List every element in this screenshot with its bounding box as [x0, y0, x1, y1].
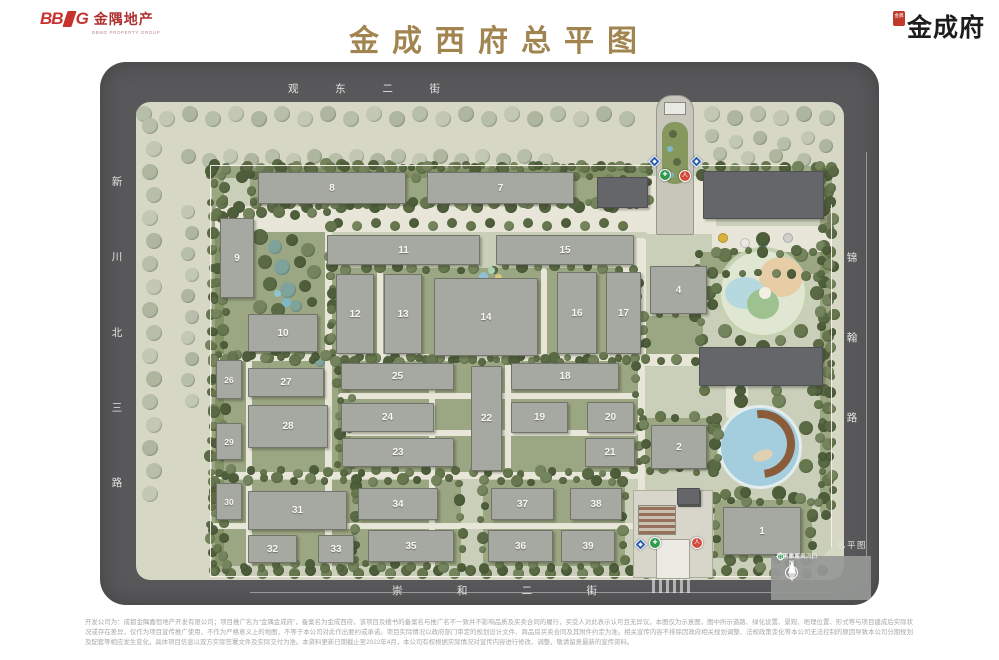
brand-name: 金成府 — [907, 8, 985, 44]
tree — [142, 394, 158, 410]
tree — [213, 544, 222, 553]
tree — [755, 562, 766, 573]
tree — [697, 318, 705, 326]
tree — [631, 361, 641, 371]
tree — [617, 525, 628, 536]
building-18: 18 — [511, 363, 619, 390]
building-25: 25 — [341, 363, 454, 390]
tree — [620, 555, 630, 565]
tree — [829, 486, 837, 494]
tree — [497, 477, 505, 485]
tree — [366, 106, 382, 122]
tree — [705, 129, 719, 143]
tree — [761, 161, 771, 171]
tree — [828, 309, 840, 321]
tree — [795, 493, 806, 504]
tree — [146, 417, 162, 433]
water-dot — [667, 146, 673, 152]
building-number: 4 — [676, 285, 682, 296]
tree — [478, 358, 486, 366]
tree — [185, 394, 199, 408]
tree — [465, 565, 476, 576]
tree — [639, 420, 648, 429]
tree — [323, 208, 331, 216]
tree — [228, 473, 239, 484]
building-31: 31 — [248, 491, 347, 530]
building-number: 35 — [405, 541, 416, 552]
building-dark — [677, 488, 700, 505]
building-number: 16 — [571, 308, 582, 319]
brand-seal-icon: 金隅 — [893, 11, 905, 26]
building-37: 37 — [491, 488, 554, 520]
tree — [142, 486, 158, 502]
building-12: 12 — [336, 274, 374, 354]
tree — [321, 477, 329, 485]
building-number: 34 — [392, 499, 403, 510]
south-entrance-gate — [633, 490, 713, 578]
building-number: 33 — [330, 544, 341, 555]
tree — [185, 226, 199, 240]
tree — [212, 214, 219, 221]
landscape-pond — [718, 405, 802, 489]
tree — [142, 210, 158, 226]
tree — [829, 438, 837, 446]
building-22: 22 — [471, 366, 502, 471]
tree — [807, 509, 818, 520]
tree — [457, 267, 465, 275]
tree — [447, 218, 457, 228]
tree — [504, 221, 514, 231]
tree — [734, 394, 748, 408]
tree — [721, 565, 732, 576]
tree — [455, 480, 462, 487]
tree — [227, 207, 239, 219]
tree — [819, 110, 835, 126]
tree — [567, 163, 575, 171]
tree — [527, 479, 535, 487]
tree — [307, 149, 322, 164]
building-number: 25 — [392, 371, 403, 382]
building-35: 35 — [368, 530, 454, 562]
tree — [725, 555, 736, 566]
north-entrance-gate — [656, 95, 694, 235]
tree — [527, 111, 543, 127]
tree — [542, 221, 552, 231]
tree — [219, 195, 229, 205]
building-number: 26 — [224, 375, 233, 385]
tree — [641, 439, 651, 449]
footpath — [541, 268, 547, 364]
tree — [826, 500, 836, 510]
building-number: 20 — [605, 412, 616, 423]
building-number: 36 — [515, 541, 526, 552]
tree — [730, 248, 738, 256]
building-number: 10 — [277, 328, 288, 339]
lane-line-bottom — [250, 592, 835, 593]
building-number: 24 — [382, 412, 393, 423]
south-gatehouse — [656, 539, 690, 579]
tree — [431, 475, 442, 486]
building-28: 28 — [248, 405, 328, 448]
tree — [256, 207, 267, 218]
tree — [711, 283, 722, 294]
building-34: 34 — [358, 488, 438, 520]
tree — [142, 164, 158, 180]
tree — [142, 440, 158, 456]
site-plan-map: 观东二街 崇和二街 新川北三路 锦翰路 总平图 N 行人出入口地下车库入口消防救… — [100, 62, 879, 605]
tree — [515, 562, 522, 569]
building-number: 21 — [604, 447, 615, 458]
tree — [822, 246, 831, 255]
tree — [294, 256, 306, 268]
tree — [713, 147, 727, 161]
building-number: 31 — [292, 505, 303, 516]
tree — [220, 403, 232, 415]
building-36: 36 — [488, 530, 553, 562]
tree — [397, 473, 409, 485]
tree — [827, 470, 838, 481]
tree — [699, 385, 710, 396]
tree — [617, 476, 628, 487]
tree — [343, 111, 359, 127]
building-number: 39 — [582, 541, 593, 552]
building-number: 9 — [234, 253, 240, 264]
tree — [713, 429, 724, 440]
tree — [268, 240, 282, 254]
building-number: 38 — [590, 499, 601, 510]
building-dark — [703, 171, 824, 219]
tree — [828, 166, 839, 177]
south-gate-canopy — [638, 505, 676, 535]
tree — [801, 131, 815, 145]
building-number: 1 — [759, 526, 765, 537]
tree — [142, 302, 158, 318]
building-number: 18 — [559, 371, 570, 382]
tree — [351, 474, 362, 485]
building-29: 29 — [216, 423, 242, 460]
tree — [309, 356, 317, 364]
tree — [791, 245, 802, 256]
tree — [371, 218, 381, 228]
tree — [274, 106, 290, 122]
building-number: 22 — [481, 413, 492, 424]
tree — [523, 218, 533, 228]
tree — [818, 224, 827, 233]
tree — [756, 232, 770, 246]
tree — [807, 385, 818, 396]
tree — [323, 467, 333, 477]
building-number: 11 — [398, 245, 409, 256]
building-number: 12 — [349, 309, 360, 320]
tree — [827, 360, 835, 368]
tree — [307, 208, 317, 218]
water-dot — [274, 290, 281, 297]
building-32: 32 — [248, 535, 297, 563]
tree — [562, 563, 569, 570]
tree — [704, 106, 720, 122]
tree — [735, 335, 746, 346]
tree — [320, 350, 331, 361]
building-number: 19 — [534, 412, 545, 423]
tree — [796, 106, 812, 122]
tree — [481, 111, 497, 127]
tree — [671, 414, 679, 422]
tree — [260, 353, 270, 363]
tree — [223, 149, 238, 164]
tree — [695, 250, 703, 258]
tree — [727, 110, 743, 126]
building-19: 19 — [511, 402, 568, 433]
tree — [327, 305, 336, 314]
tree — [735, 385, 746, 396]
disclaimer-text: 开发公司为：成都金隅嘉恒地产开发有限公司；项目推广名为“金隅金成府”，备案名为金… — [85, 618, 913, 647]
tree — [805, 527, 816, 538]
tree — [339, 161, 350, 172]
tree — [573, 111, 589, 127]
tree — [720, 489, 731, 500]
tree — [622, 492, 630, 500]
tree — [711, 413, 722, 424]
tree — [219, 182, 230, 193]
tree — [422, 266, 430, 274]
building-8: 8 — [258, 172, 406, 204]
compass-icon — [785, 560, 799, 584]
tree — [458, 106, 474, 122]
tree — [205, 111, 221, 127]
tree — [776, 250, 784, 258]
tree — [695, 335, 706, 346]
tree — [565, 468, 572, 475]
tree — [435, 111, 451, 127]
tree — [340, 476, 347, 483]
building-21: 21 — [585, 438, 635, 467]
tree — [454, 494, 466, 506]
tree — [815, 161, 825, 171]
building-38: 38 — [570, 488, 622, 520]
tree — [181, 289, 195, 303]
tree — [485, 218, 495, 228]
tree — [263, 277, 277, 291]
tree — [504, 106, 520, 122]
tree — [273, 206, 285, 218]
tree — [825, 452, 834, 461]
tree — [640, 455, 650, 465]
tree — [247, 466, 255, 474]
tree — [585, 199, 592, 206]
amenity-icon — [718, 233, 728, 243]
tree — [385, 568, 396, 579]
fire-entrance-marker: ✚ — [649, 537, 661, 549]
building-9: 9 — [220, 218, 254, 298]
brand-logo: 金隅 金成府 — [893, 8, 985, 44]
legend-item-label: 消防救援出入口 — [777, 552, 818, 560]
tree — [258, 564, 265, 571]
tree — [325, 221, 337, 233]
tree — [258, 255, 272, 269]
building-2: 2 — [651, 425, 707, 469]
water-dot — [282, 298, 291, 307]
tree — [301, 243, 315, 257]
tree — [307, 297, 317, 307]
ped-entrance-marker: 人 — [691, 537, 703, 549]
ped-entrance-marker: 人 — [679, 170, 691, 182]
tree — [277, 353, 285, 361]
tree — [185, 268, 199, 282]
tree — [146, 463, 162, 479]
building-27: 27 — [248, 368, 324, 397]
tree — [641, 338, 651, 348]
tree — [280, 282, 296, 298]
playground-center — [759, 287, 771, 299]
tree — [718, 324, 732, 338]
building-number: 2 — [676, 442, 682, 453]
tree — [808, 541, 817, 550]
tree — [466, 221, 476, 231]
building-16: 16 — [557, 272, 597, 354]
tree — [459, 545, 467, 553]
tree — [327, 272, 335, 280]
tree — [146, 187, 162, 203]
fire-entrance-marker: ✚ — [659, 169, 671, 181]
tree — [181, 373, 195, 387]
tree — [286, 234, 298, 246]
tree — [715, 161, 726, 172]
tree — [368, 477, 378, 487]
tree — [673, 158, 681, 166]
tree — [413, 476, 421, 484]
building-number: 37 — [517, 499, 528, 510]
building-number: 23 — [392, 447, 403, 458]
tree — [729, 135, 743, 149]
tree — [814, 400, 823, 409]
tree — [290, 477, 298, 485]
tree — [251, 111, 267, 127]
tree — [289, 354, 301, 366]
tree — [479, 563, 490, 574]
tree — [825, 421, 836, 432]
amenity-icon — [783, 233, 793, 243]
tree — [352, 221, 362, 231]
tree — [826, 183, 836, 193]
tree — [411, 173, 421, 183]
tree — [211, 297, 218, 304]
north-gatehouse — [664, 102, 686, 115]
tree — [390, 221, 400, 231]
tree — [307, 265, 321, 279]
tree — [220, 341, 228, 349]
tree — [622, 355, 632, 365]
tree — [807, 498, 815, 506]
tree — [336, 564, 344, 572]
building-number: 32 — [267, 544, 278, 555]
tree — [209, 343, 216, 350]
tree — [205, 165, 217, 177]
tree — [453, 162, 460, 169]
building-39: 39 — [561, 530, 615, 562]
tree — [815, 433, 825, 443]
tree — [819, 139, 833, 153]
tree — [737, 568, 748, 579]
tree — [828, 373, 835, 380]
tree — [146, 141, 162, 157]
tree — [181, 331, 195, 345]
tree — [297, 111, 313, 127]
tree — [320, 563, 330, 573]
tree — [619, 111, 635, 127]
building-number: 27 — [280, 377, 291, 388]
water-dot — [488, 267, 495, 274]
tree — [146, 233, 162, 249]
tree — [327, 333, 336, 342]
building-10: 10 — [248, 314, 318, 352]
tree — [209, 328, 217, 336]
tree — [561, 218, 571, 228]
tree — [159, 111, 175, 127]
tree — [479, 475, 489, 485]
tree — [185, 310, 199, 324]
tree — [181, 149, 196, 164]
building-13: 13 — [384, 274, 422, 354]
tree — [243, 475, 253, 485]
building-33: 33 — [318, 535, 354, 563]
tree — [409, 218, 419, 228]
map-legend: N 行人出入口地下车库入口消防救援出入口 — [771, 556, 871, 600]
building-14: 14 — [434, 278, 538, 356]
tree — [750, 106, 766, 122]
tree — [817, 322, 826, 331]
tree — [753, 131, 767, 145]
crosswalk — [652, 579, 694, 593]
building-7: 7 — [427, 172, 574, 204]
page: { "header": { "bbmg": { "bb": "BB", "g":… — [0, 0, 999, 660]
building-26: 26 — [216, 360, 242, 399]
tree — [801, 271, 811, 281]
tree — [596, 106, 612, 122]
building-number: 7 — [498, 183, 504, 194]
tree — [707, 267, 718, 278]
tree — [599, 218, 609, 228]
tree — [253, 300, 267, 314]
building-number: 15 — [559, 245, 570, 256]
corner-label: 总平图 — [837, 539, 867, 551]
tree — [615, 161, 624, 170]
tree — [146, 371, 162, 387]
building-11: 11 — [327, 235, 480, 265]
tree — [580, 221, 590, 231]
tree — [817, 288, 825, 296]
tree — [540, 472, 551, 483]
tree — [714, 454, 722, 462]
tree — [274, 259, 290, 275]
tree — [829, 328, 837, 336]
tree — [181, 205, 195, 219]
tree — [511, 475, 523, 487]
tree — [211, 309, 221, 319]
tree — [146, 325, 162, 341]
building-number: 17 — [618, 308, 629, 319]
building-24: 24 — [341, 403, 434, 432]
tree — [769, 149, 783, 163]
tree — [628, 165, 635, 172]
tree — [228, 106, 244, 122]
tree — [815, 306, 826, 317]
building-4: 4 — [650, 266, 707, 314]
building-23: 23 — [342, 438, 454, 467]
tree — [412, 106, 428, 122]
tree — [210, 568, 217, 575]
tree — [771, 385, 782, 396]
building-number: 13 — [397, 309, 408, 320]
